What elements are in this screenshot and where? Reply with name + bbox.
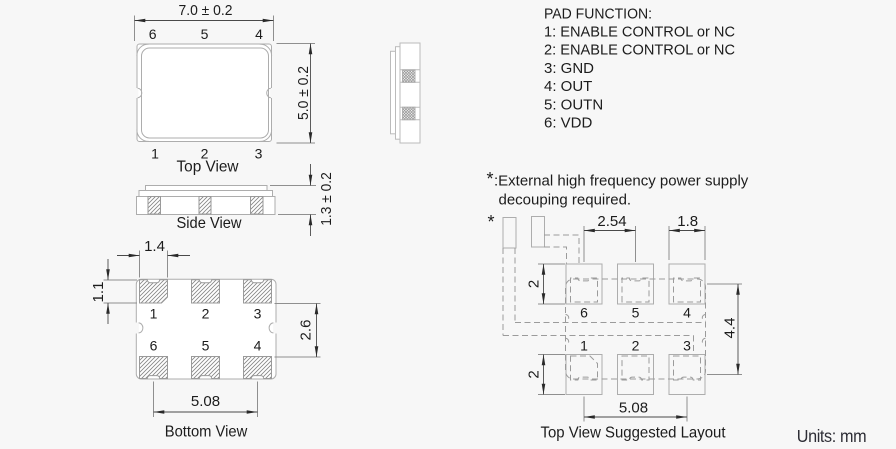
svg-text:1.3 ± 0.2: 1.3 ± 0.2 — [318, 172, 335, 226]
svg-text:PAD FUNCTION:: PAD FUNCTION: — [544, 5, 652, 22]
svg-text:5.08: 5.08 — [191, 393, 220, 410]
svg-text::External high frequency power: :External high frequency power supply — [494, 173, 749, 190]
svg-text:5.0 ± 0.2: 5.0 ± 0.2 — [295, 66, 312, 120]
svg-text:Side View: Side View — [177, 215, 242, 232]
svg-text:4: OUT: 4: OUT — [544, 78, 592, 95]
svg-text:5: 5 — [201, 26, 209, 42]
svg-text:Units: mm: Units: mm — [797, 426, 867, 446]
svg-text:1.8: 1.8 — [677, 213, 698, 230]
svg-text:5: 5 — [202, 338, 210, 354]
svg-text:6: VDD: 6: VDD — [544, 115, 593, 132]
svg-text:1: ENABLE CONTROL or NC: 1: ENABLE CONTROL or NC — [544, 24, 735, 41]
svg-text:Top View: Top View — [177, 159, 239, 176]
svg-text:6: 6 — [149, 26, 157, 42]
svg-text:2: 2 — [202, 306, 210, 322]
svg-text:5: OUTN: 5: OUTN — [544, 96, 603, 113]
svg-text:6: 6 — [580, 305, 588, 321]
svg-text:2: 2 — [526, 370, 543, 378]
svg-text:decouping required.: decouping required. — [499, 192, 632, 209]
svg-text:2: 2 — [526, 280, 543, 288]
svg-text:2: 2 — [632, 338, 640, 354]
svg-text:1: 1 — [580, 338, 588, 354]
svg-text:3: 3 — [683, 338, 691, 354]
svg-text:5.08: 5.08 — [619, 400, 648, 417]
svg-text:3: 3 — [254, 306, 262, 322]
svg-text:1: 1 — [150, 306, 158, 322]
svg-text:1.1: 1.1 — [90, 282, 107, 303]
svg-text:7.0 ± 0.2: 7.0 ± 0.2 — [179, 2, 233, 19]
svg-text:6: 6 — [150, 338, 158, 354]
svg-text:2.6: 2.6 — [298, 320, 315, 341]
svg-text:5: 5 — [632, 305, 640, 321]
svg-text:4.4: 4.4 — [722, 318, 739, 339]
svg-text:1: 1 — [151, 146, 159, 162]
svg-text:2: ENABLE CONTROL or NC: 2: ENABLE CONTROL or NC — [544, 42, 735, 59]
svg-text:Top View Suggested Layout: Top View Suggested Layout — [541, 425, 727, 442]
svg-text:3: GND: 3: GND — [544, 60, 594, 77]
svg-text:4: 4 — [254, 338, 262, 354]
svg-text:2.54: 2.54 — [597, 213, 626, 230]
svg-text:*: * — [488, 212, 495, 232]
svg-text:4: 4 — [255, 26, 263, 42]
svg-text:3: 3 — [255, 146, 263, 162]
svg-text:4: 4 — [683, 305, 691, 321]
svg-text:*: * — [487, 169, 494, 189]
svg-text:Bottom View: Bottom View — [165, 424, 248, 441]
svg-text:1.4: 1.4 — [144, 238, 165, 255]
